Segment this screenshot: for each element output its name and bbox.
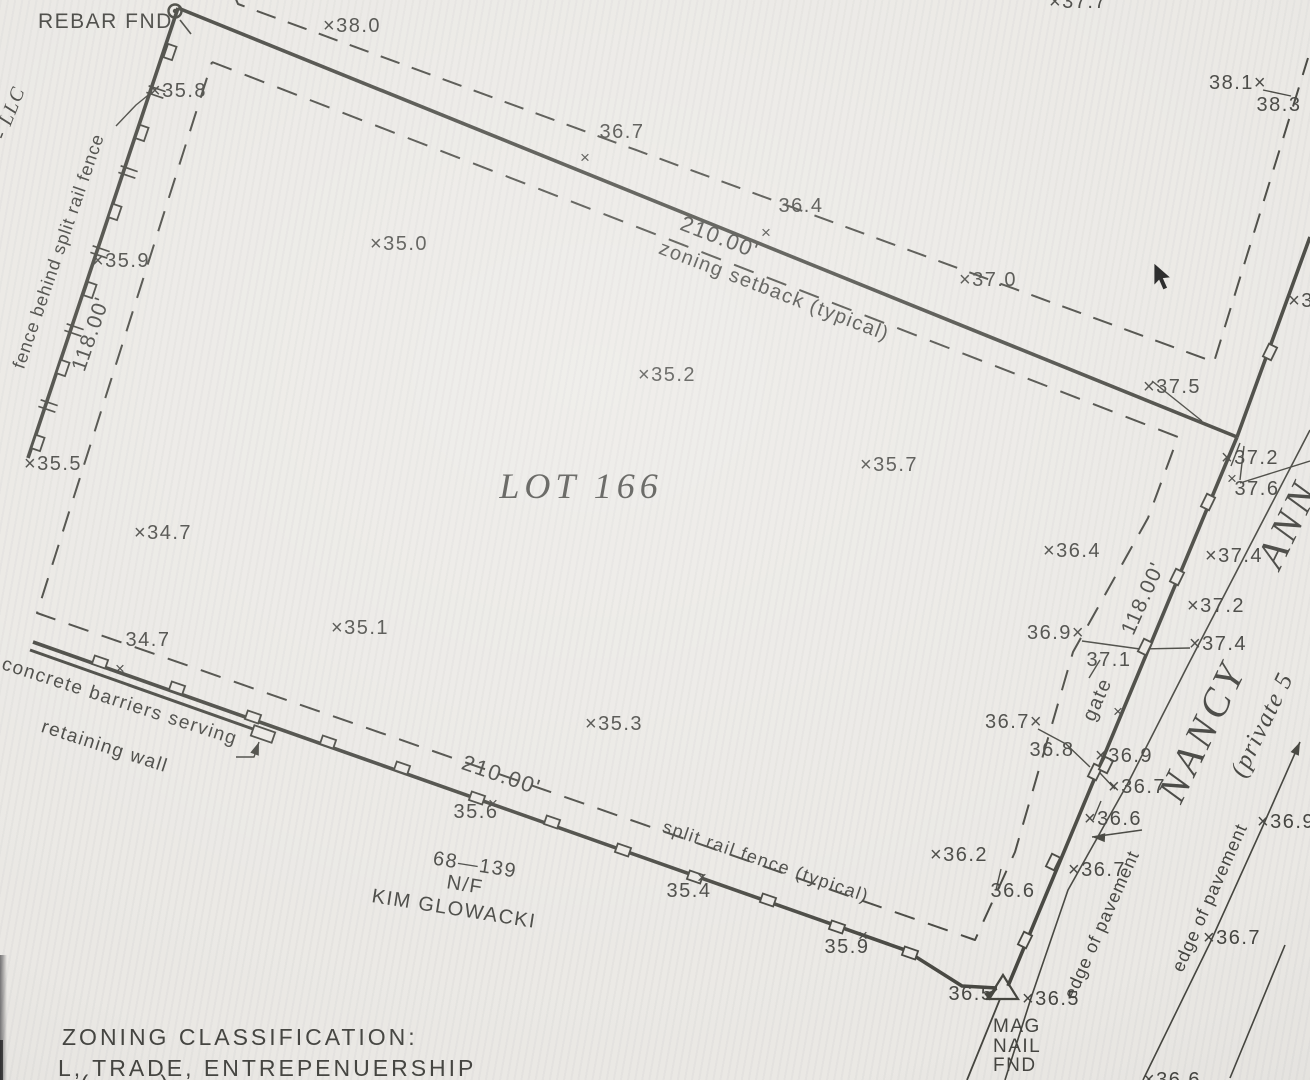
spot-elevation: ×35.1 bbox=[331, 617, 389, 639]
spot-elevation: ×37.5 bbox=[1143, 376, 1201, 398]
survey-plat-page: ××××××××REBAR FND×38.0×37.738.1×38.3×35.… bbox=[0, 0, 1310, 1080]
gate-label: gate bbox=[1078, 675, 1116, 725]
dimension-right: 118.00' bbox=[1117, 558, 1169, 638]
spot-elevation: ×35.0 bbox=[370, 233, 428, 255]
spot-elevation: ×36.6 bbox=[1084, 808, 1142, 830]
fence-post-marker bbox=[1170, 569, 1184, 586]
fence-post-marker bbox=[1201, 494, 1215, 511]
spot-elevation: ×35.3 bbox=[585, 713, 643, 735]
spot-elevation-clipped: ×36.6 bbox=[1143, 1069, 1201, 1080]
mag-nail-label-2: NAIL bbox=[993, 1036, 1041, 1057]
zoning-classification-title: ZONING CLASSIFICATION: bbox=[62, 1024, 418, 1050]
spot-elevation: 37.1 bbox=[1087, 649, 1132, 671]
spot-elevation: 36.8 bbox=[1030, 739, 1075, 761]
spot-elevation: 36.5 bbox=[949, 983, 994, 1005]
spot-elevation: 36.7× bbox=[985, 711, 1043, 733]
spot-elevation: ×36.9 bbox=[1257, 811, 1310, 833]
spot-elevation-clipped: ×3 bbox=[1288, 290, 1310, 312]
fence-post-marker bbox=[245, 710, 261, 723]
fence-rail-tick bbox=[38, 406, 55, 412]
spot-elevation: ×36.2 bbox=[930, 844, 988, 866]
clipped-paren-left: ( bbox=[80, 1071, 90, 1080]
fence-post-marker bbox=[92, 655, 108, 668]
spot-elevation: ×37.2 bbox=[1221, 447, 1279, 469]
spot-elevation: 36.7 bbox=[600, 121, 645, 143]
zoning-classification-value: L, TRADE, ENTREPENUERSHIP bbox=[58, 1055, 476, 1080]
leader-arrowhead bbox=[1092, 833, 1105, 843]
spot-elevation: ×35.9 bbox=[92, 250, 150, 272]
spot-elevation: ×37.0 bbox=[959, 269, 1017, 291]
spot-elevation-clipped: ×37.7 bbox=[1049, 0, 1107, 13]
parcel-nf-label: N/F bbox=[445, 871, 485, 898]
road-line-southeast bbox=[1230, 945, 1285, 1078]
fence-post-marker bbox=[829, 920, 845, 933]
fence-post-marker bbox=[615, 843, 631, 856]
spot-elevation: ×36.7 bbox=[1203, 927, 1261, 949]
road-name-nancy: NANCY bbox=[1148, 653, 1255, 810]
spot-elevation: 35.9 bbox=[825, 936, 870, 958]
spot-elevation: ×35.5 bbox=[24, 453, 82, 475]
lot-title: LOT 166 bbox=[498, 466, 662, 506]
spot-elevation: 35.4 bbox=[667, 880, 712, 902]
x-elevation-marker: × bbox=[1113, 702, 1123, 721]
spot-elevation: 34.7 bbox=[126, 629, 171, 651]
spot-elevation: 37.6 bbox=[1235, 478, 1280, 500]
spot-elevation: ×37.4 bbox=[1189, 633, 1247, 655]
fence-post-marker bbox=[1138, 639, 1152, 656]
spot-elevation: ×35.8 bbox=[149, 80, 207, 102]
clipped-paren-right: ) bbox=[160, 1071, 170, 1080]
mouse-cursor[interactable] bbox=[1154, 263, 1171, 290]
fence-post-marker bbox=[760, 893, 776, 906]
spot-elevation: ×36.9 bbox=[1095, 745, 1153, 767]
fence-post-marker bbox=[320, 735, 336, 748]
left-fence-line bbox=[28, 8, 178, 458]
road-fence-north-line bbox=[1237, 237, 1310, 437]
x-elevation-marker: × bbox=[115, 659, 125, 678]
edge-of-pavement-east: edge of pavement bbox=[1168, 820, 1251, 974]
spot-elevation: ×37.2 bbox=[1187, 595, 1245, 617]
fence-rail-tick bbox=[41, 400, 58, 406]
leader-arrowhead bbox=[1291, 740, 1305, 756]
spot-elevation: 36.4 bbox=[779, 195, 824, 217]
spot-elevation: 36.9× bbox=[1027, 622, 1085, 644]
zoning-setback-label: zoning setback (typical) bbox=[656, 237, 893, 345]
mag-nail-label-1: MAG bbox=[993, 1016, 1041, 1037]
leader-36-9-37-4 bbox=[1082, 641, 1190, 649]
spot-elevation: 36.6 bbox=[991, 880, 1036, 902]
rebar-tick bbox=[180, 20, 191, 34]
spot-elevation: 35.6 bbox=[454, 801, 499, 823]
outer-setback-dashed-line bbox=[233, 0, 1308, 362]
fence-post-marker bbox=[544, 815, 560, 828]
spot-elevation: 38.3 bbox=[1257, 94, 1302, 116]
spot-elevation: ×34.7 bbox=[134, 522, 192, 544]
spot-elevation: ×35.2 bbox=[638, 364, 696, 386]
barrier-note-line2: retaining wall bbox=[39, 716, 171, 777]
fence-post-marker bbox=[394, 761, 410, 774]
mag-nail-label-3: FND bbox=[993, 1055, 1037, 1076]
spot-elevation: 38.1× bbox=[1209, 72, 1267, 94]
fence-post-marker bbox=[1263, 344, 1277, 361]
x-elevation-marker: × bbox=[580, 148, 590, 167]
fence-post-marker bbox=[1018, 932, 1032, 949]
rebar-fnd-label: REBAR FND bbox=[38, 10, 173, 33]
leader-arrowhead bbox=[250, 740, 263, 755]
leader-35-8 bbox=[116, 92, 152, 126]
spot-elevation: ×35.7 bbox=[860, 454, 918, 476]
fence-post-marker bbox=[902, 946, 918, 959]
spot-elevation: ×36.4 bbox=[1043, 540, 1101, 562]
photo-edge-shadow-corner bbox=[0, 1040, 3, 1080]
owner-llc-label: - LLC bbox=[0, 83, 30, 142]
survey-plat-drawing: ××××××××REBAR FND×38.0×37.738.1×38.3×35.… bbox=[0, 0, 1310, 1080]
spot-elevation: ×38.0 bbox=[323, 15, 381, 37]
rebar-found-center bbox=[173, 9, 177, 13]
